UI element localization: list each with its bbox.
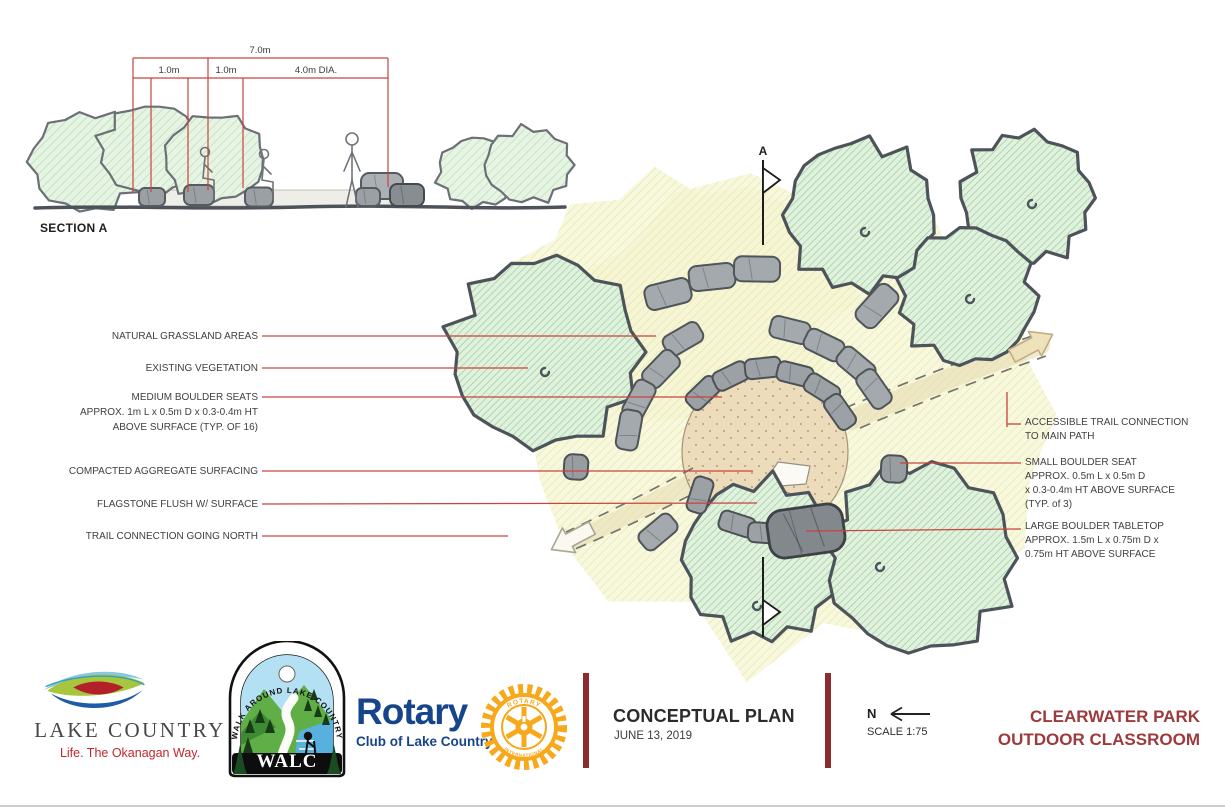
callout-line: LARGE BOULDER TABLETOP: [1025, 520, 1164, 534]
callout-line: APPROX. 1.5m L x 0.75m D x: [1025, 534, 1164, 548]
rotary-name: Rotary: [356, 692, 493, 732]
callout-line: SMALL BOULDER SEAT: [1025, 456, 1175, 470]
callout-line: TRAIL CONNECTION GOING NORTH: [86, 529, 258, 544]
lake-country-tagline: Life. The Okanagan Way.: [30, 746, 230, 760]
section-title: SECTION A: [40, 221, 108, 235]
project-title-line2: OUTDOOR CLASSROOM: [998, 728, 1200, 751]
walc-logo: WALK AROUND LAKE COUNTRY WALC: [224, 641, 350, 778]
plan-sheet: 7.0m 1.0m 1.0m 4.0m DIA. SECTION A A NAT…: [0, 0, 1225, 810]
project-title-line1: CLEARWATER PARK: [998, 705, 1200, 728]
callout-existing-vegetation: EXISTING VEGETATION: [146, 361, 258, 376]
callout-line: EXISTING VEGETATION: [146, 361, 258, 376]
callout-natural-grassland: NATURAL GRASSLAND AREAS: [112, 329, 258, 344]
rotary-wheel: ROTARY INTERNATIONAL: [478, 681, 570, 773]
scale-label: SCALE 1:75: [867, 726, 928, 738]
rotary-club: Club of Lake Country: [356, 734, 493, 749]
callout-compacted-aggregate: COMPACTED AGGREGATE SURFACING: [69, 464, 258, 479]
sheet-bottom-rule: [0, 805, 1225, 807]
section-marker-letter: A: [759, 144, 768, 158]
callout-trail-north: TRAIL CONNECTION GOING NORTH: [86, 529, 258, 544]
divider-bar-right: [825, 673, 831, 768]
lake-country-emblem: [30, 664, 160, 716]
callout-line: MEDIUM BOULDER SEATS: [80, 390, 258, 405]
callout-line: ABOVE SURFACE (TYP. OF 16): [80, 420, 258, 435]
callout-line: 0.75m HT ABOVE SURFACE: [1025, 548, 1164, 562]
callout-medium-boulder-seats: MEDIUM BOULDER SEATS APPROX. 1m L x 0.5m…: [80, 390, 258, 435]
walc-name: WALC: [224, 751, 350, 773]
project-title: CLEARWATER PARK OUTDOOR CLASSROOM: [998, 705, 1200, 751]
titleblock-date: JUNE 13, 2019: [614, 730, 692, 742]
callout-line: (TYP. of 3): [1025, 498, 1175, 512]
divider-bar-left: [583, 673, 589, 768]
callout-line: NATURAL GRASSLAND AREAS: [112, 329, 258, 344]
callout-line: APPROX. 1m L x 0.5m D x 0.3-0.4m HT: [80, 405, 258, 420]
callout-line: APPROX. 0.5m L x 0.5m D: [1025, 470, 1175, 484]
dim-2: 1.0m: [215, 65, 236, 76]
callout-line: ACCESSIBLE TRAIL CONNECTION: [1025, 416, 1188, 430]
lake-country-logo: LAKE COUNTRY Life. The Okanagan Way.: [30, 664, 230, 760]
rotary-logo: Rotary Club of Lake Country: [356, 692, 493, 749]
lake-country-name: LAKE COUNTRY: [30, 718, 230, 743]
callout-small-boulder-seat: SMALL BOULDER SEAT APPROX. 0.5m L x 0.5m…: [1025, 456, 1175, 512]
callout-line: FLAGSTONE FLUSH W/ SURFACE: [97, 497, 258, 512]
dim-1: 1.0m: [158, 65, 179, 76]
callout-line: x 0.3-0.4m HT ABOVE SURFACE: [1025, 484, 1175, 498]
callout-accessible-trail: ACCESSIBLE TRAIL CONNECTION TO MAIN PATH: [1025, 416, 1188, 444]
callout-line: COMPACTED AGGREGATE SURFACING: [69, 464, 258, 479]
dim-3: 4.0m DIA.: [295, 65, 337, 76]
dim-overall: 7.0m: [249, 45, 270, 56]
north-label: N: [867, 706, 876, 721]
callout-large-boulder-tabletop: LARGE BOULDER TABLETOP APPROX. 1.5m L x …: [1025, 520, 1164, 562]
titleblock-title: CONCEPTUAL PLAN: [613, 706, 795, 727]
callout-line: TO MAIN PATH: [1025, 430, 1188, 444]
north-arrow-icon: [884, 706, 934, 722]
callout-flagstone: FLAGSTONE FLUSH W/ SURFACE: [97, 497, 258, 512]
